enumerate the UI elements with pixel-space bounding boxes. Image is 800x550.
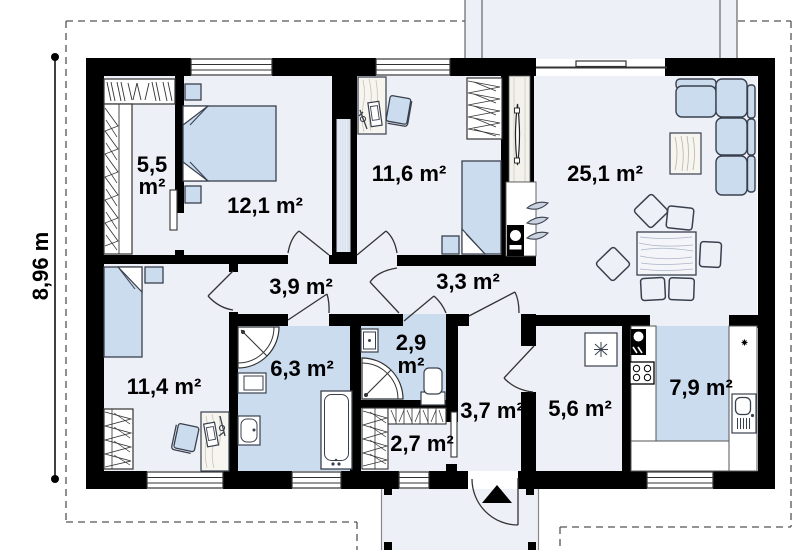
svg-text:11,4 m²: 11,4 m² (127, 374, 202, 399)
svg-text:3,3 m²: 3,3 m² (436, 269, 500, 294)
svg-text:7,9 m²: 7,9 m² (669, 375, 733, 400)
svg-text:6,3 m²: 6,3 m² (270, 356, 334, 381)
svg-text:12,1 m²: 12,1 m² (227, 193, 303, 218)
svg-text:11,6 m²: 11,6 m² (372, 161, 447, 186)
svg-text:25,1 m²: 25,1 m² (567, 161, 643, 186)
svg-text:m²: m² (139, 174, 166, 199)
svg-text:3,7 m²: 3,7 m² (460, 398, 524, 423)
svg-text:5,6 m²: 5,6 m² (548, 396, 612, 421)
svg-text:8,96 m: 8,96 m (28, 232, 53, 301)
svg-text:2,9: 2,9 (396, 330, 427, 355)
svg-text:m²: m² (398, 353, 425, 378)
svg-text:3,9 m²: 3,9 m² (269, 274, 333, 299)
svg-text:2,7 m²: 2,7 m² (390, 431, 454, 456)
